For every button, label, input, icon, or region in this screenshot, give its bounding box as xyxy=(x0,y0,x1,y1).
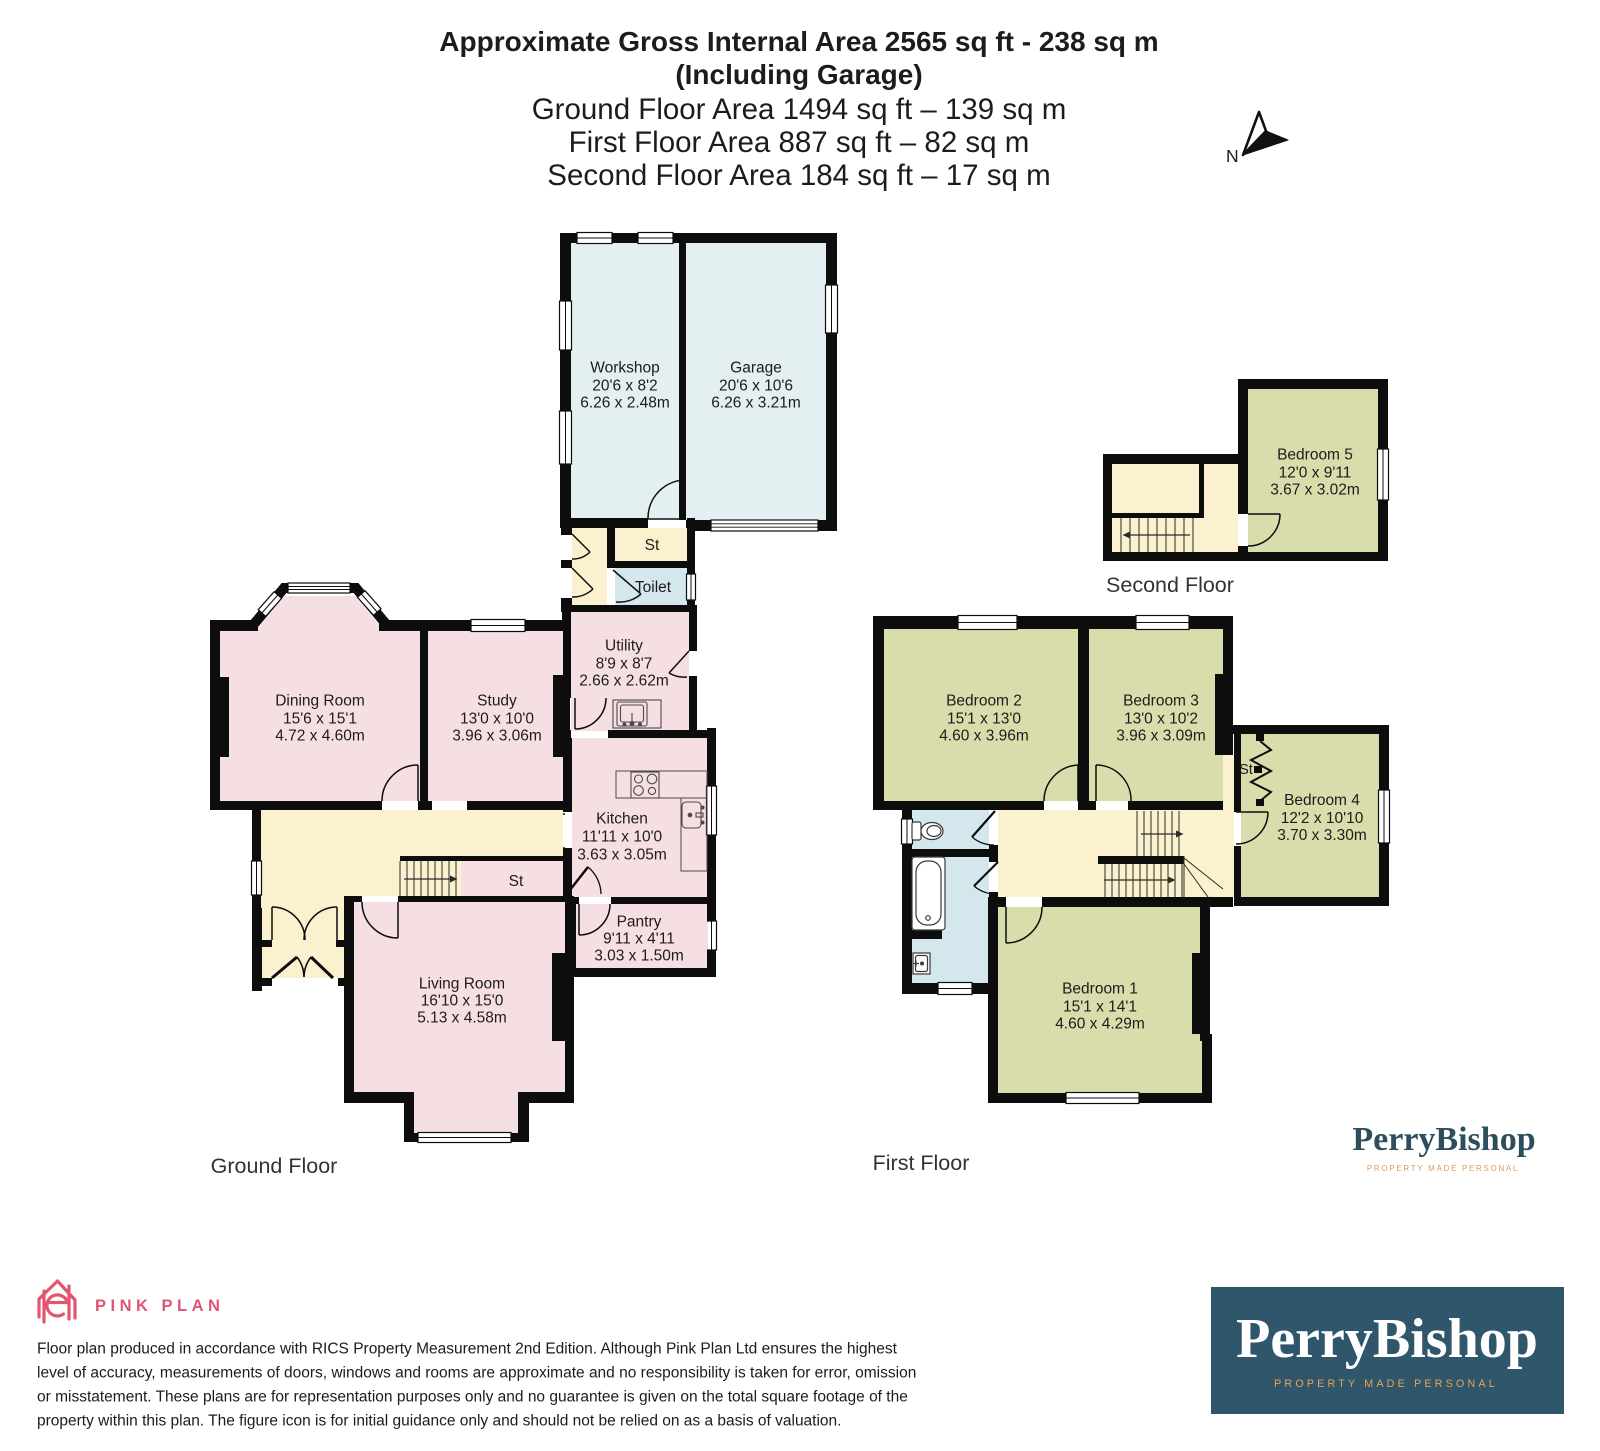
svg-text:2.66 x 2.62m: 2.66 x 2.62m xyxy=(579,673,669,690)
svg-text:3.03 x 1.50m: 3.03 x 1.50m xyxy=(594,948,684,965)
svg-text:St: St xyxy=(1239,762,1253,778)
svg-text:Pantry: Pantry xyxy=(617,914,662,931)
svg-text:5.13 x 4.58m: 5.13 x 4.58m xyxy=(417,1010,507,1027)
svg-text:Second Floor Area 184 sq ft –: Second Floor Area 184 sq ft – 17 sq m xyxy=(547,159,1050,192)
svg-text:12'2 x 10'10: 12'2 x 10'10 xyxy=(1281,810,1364,827)
svg-text:First Floor: First Floor xyxy=(873,1151,970,1175)
svg-text:3.70 x 3.30m: 3.70 x 3.30m xyxy=(1277,827,1367,844)
svg-text:9'11 x 4'11: 9'11 x 4'11 xyxy=(603,931,675,948)
svg-text:Bedroom 3: Bedroom 3 xyxy=(1123,693,1199,710)
svg-text:Toilet: Toilet xyxy=(635,579,672,596)
svg-text:or misstatement. These plans a: or misstatement. These plans are for rep… xyxy=(37,1389,908,1406)
svg-text:3.96 x 3.09m: 3.96 x 3.09m xyxy=(1116,728,1206,745)
svg-text:20'6 x 10'6: 20'6 x 10'6 xyxy=(719,378,793,395)
svg-text:Garage: Garage xyxy=(730,360,782,377)
svg-text:13'0 x 10'2: 13'0 x 10'2 xyxy=(1124,711,1198,728)
svg-text:4.60 x 3.96m: 4.60 x 3.96m xyxy=(939,728,1029,745)
svg-text:level of accuracy, measurement: level of accuracy, measurements of doors… xyxy=(37,1365,916,1382)
svg-text:PROPERTY MADE PERSONAL: PROPERTY MADE PERSONAL xyxy=(1367,1164,1519,1173)
svg-text:20'6 x 8'2: 20'6 x 8'2 xyxy=(592,378,657,395)
svg-text:Dining Room: Dining Room xyxy=(275,693,365,710)
svg-text:PINK PLAN: PINK PLAN xyxy=(95,1297,224,1315)
svg-text:Workshop: Workshop xyxy=(590,360,660,377)
svg-text:Bedroom 2: Bedroom 2 xyxy=(946,693,1022,710)
svg-text:16'10 x 15'0: 16'10 x 15'0 xyxy=(421,993,504,1010)
svg-text:Bedroom 1: Bedroom 1 xyxy=(1062,981,1138,998)
svg-text:Ground Floor: Ground Floor xyxy=(211,1154,338,1178)
svg-text:Kitchen: Kitchen xyxy=(596,811,648,828)
svg-text:Utility: Utility xyxy=(605,638,643,655)
svg-text:Bedroom 5: Bedroom 5 xyxy=(1277,447,1353,464)
svg-text:12'0 x 9'11: 12'0 x 9'11 xyxy=(1279,465,1352,482)
svg-text:First Floor Area 887 sq ft – 8: First Floor Area 887 sq ft – 82 sq m xyxy=(569,126,1030,159)
svg-text:property within this plan. The: property within this plan. The figure ic… xyxy=(37,1413,841,1430)
svg-text:13'0 x 10'0: 13'0 x 10'0 xyxy=(460,711,534,728)
svg-text:15'1 x 13'0: 15'1 x 13'0 xyxy=(947,711,1021,728)
svg-text:N: N xyxy=(1226,146,1239,166)
svg-text:Floor plan produced in accorda: Floor plan produced in accordance with R… xyxy=(37,1341,898,1358)
svg-text:6.26 x 3.21m: 6.26 x 3.21m xyxy=(711,395,801,412)
svg-text:Ground Floor Area 1494 sq ft –: Ground Floor Area 1494 sq ft – 139 sq m xyxy=(532,93,1067,126)
svg-text:St: St xyxy=(645,537,660,554)
svg-text:3.96 x 3.06m: 3.96 x 3.06m xyxy=(452,728,542,745)
svg-text:11'11 x 10'0: 11'11 x 10'0 xyxy=(582,829,663,846)
svg-text:4.72 x 4.60m: 4.72 x 4.60m xyxy=(275,728,365,745)
svg-text:St: St xyxy=(509,873,524,890)
svg-text:3.67 x 3.02m: 3.67 x 3.02m xyxy=(1270,482,1360,499)
svg-text:8'9 x 8'7: 8'9 x 8'7 xyxy=(596,656,653,673)
svg-text:15'1 x 14'1: 15'1 x 14'1 xyxy=(1063,999,1137,1016)
svg-text:6.26 x 2.48m: 6.26 x 2.48m xyxy=(580,395,670,412)
svg-text:Study: Study xyxy=(477,693,517,710)
svg-text:4.60 x 4.29m: 4.60 x 4.29m xyxy=(1055,1016,1145,1033)
svg-text:Second Floor: Second Floor xyxy=(1106,573,1234,597)
svg-text:PerryBishop: PerryBishop xyxy=(1236,1308,1538,1370)
svg-text:PROPERTY MADE PERSONAL: PROPERTY MADE PERSONAL xyxy=(1274,1378,1498,1390)
svg-text:Living Room: Living Room xyxy=(419,976,505,993)
svg-text:Approximate Gross Internal Are: Approximate Gross Internal Area 2565 sq … xyxy=(439,26,1158,57)
svg-text:(Including Garage): (Including Garage) xyxy=(675,59,922,90)
svg-text:Bedroom 4: Bedroom 4 xyxy=(1284,792,1360,809)
svg-text:3.63 x 3.05m: 3.63 x 3.05m xyxy=(577,847,667,864)
svg-text:PerryBishop: PerryBishop xyxy=(1352,1121,1535,1158)
svg-text:15'6 x 15'1: 15'6 x 15'1 xyxy=(283,711,357,728)
